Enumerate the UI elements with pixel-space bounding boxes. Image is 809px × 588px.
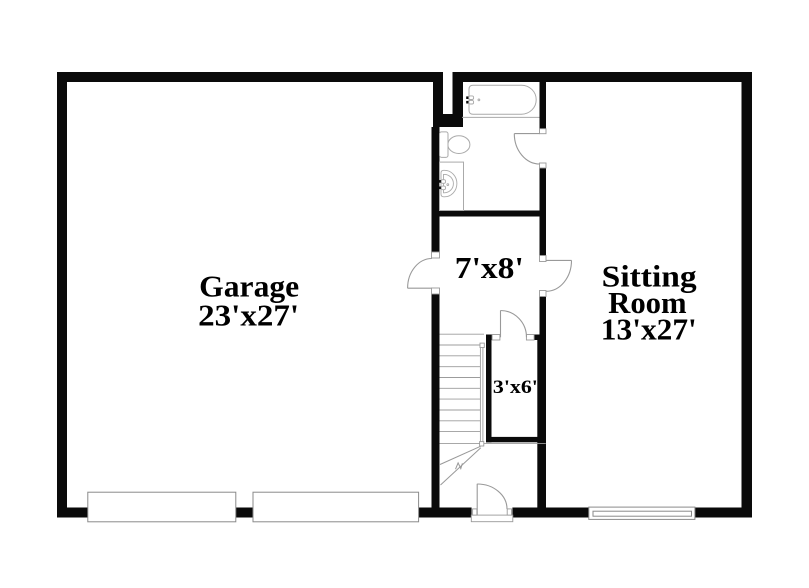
- svg-text:7'x8': 7'x8': [455, 250, 524, 285]
- svg-text:23'x27': 23'x27': [198, 297, 299, 332]
- svg-text:13'x27': 13'x27': [601, 312, 697, 347]
- svg-text:3'x6': 3'x6': [493, 377, 538, 398]
